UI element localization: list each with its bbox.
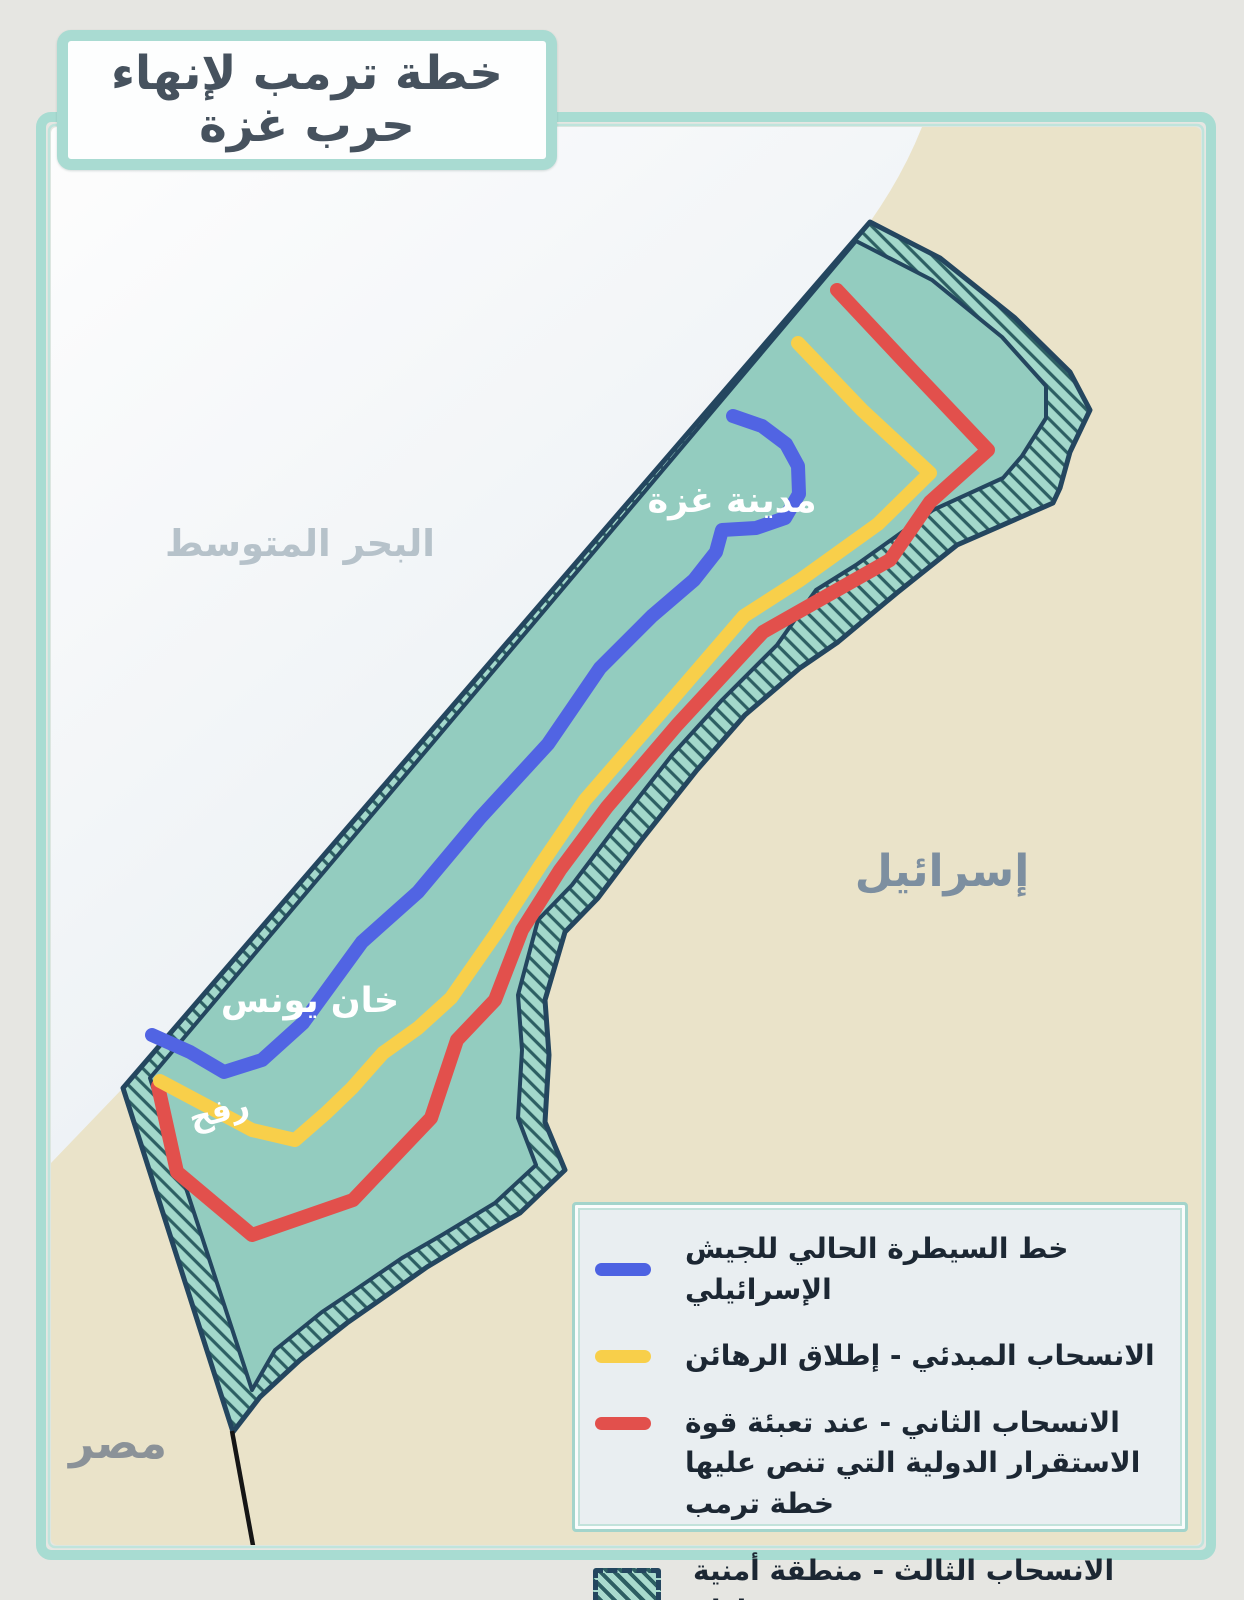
- legend-label-israeli-control: خط السيطرة الحالي للجيش الإسرائيلي: [661, 1229, 1165, 1310]
- blue-line-swatch: [595, 1263, 651, 1276]
- legend-row-second-withdrawal: الانسحاب الثاني - عند تعبئة قوة الاستقرا…: [593, 1403, 1165, 1525]
- legend-label-second-withdrawal: الانسحاب الثاني - عند تعبئة قوة الاستقرا…: [661, 1403, 1145, 1525]
- page-title: خطة ترمب لإنهاء حرب غزة: [68, 48, 546, 151]
- title-box: خطة ترمب لإنهاء حرب غزة: [57, 30, 557, 170]
- israel-label: إسرائيل: [855, 846, 1030, 897]
- egypt-label: مصر: [67, 1418, 167, 1469]
- khan-younis-label: خان يونس: [221, 981, 399, 1021]
- legend-label-initial-withdrawal: الانسحاب المبدئي - إطلاق الرهائن: [661, 1336, 1155, 1377]
- legend-row-israeli-control: خط السيطرة الحالي للجيش الإسرائيلي: [593, 1229, 1165, 1310]
- red-line-swatch: [595, 1417, 651, 1430]
- legend: خط السيطرة الحالي للجيش الإسرائيلي الانس…: [572, 1202, 1188, 1532]
- legend-row-initial-withdrawal: الانسحاب المبدئي - إطلاق الرهائن: [593, 1336, 1165, 1377]
- sea-label: البحر المتوسط: [165, 522, 435, 565]
- legend-row-third-withdrawal: الانسحاب الثالث - منطقة أمنية عازلة: [593, 1551, 1165, 1600]
- yellow-line-swatch: [595, 1350, 651, 1363]
- infographic-canvas: البحر المتوسط إسرائيل مصر مدينة غزة خان …: [0, 0, 1244, 1600]
- legend-label-third-withdrawal: الانسحاب الثالث - منطقة أمنية عازلة: [669, 1551, 1165, 1600]
- gaza-city-label: مدينة غزة: [647, 481, 816, 521]
- hatch-area-swatch: [593, 1568, 661, 1600]
